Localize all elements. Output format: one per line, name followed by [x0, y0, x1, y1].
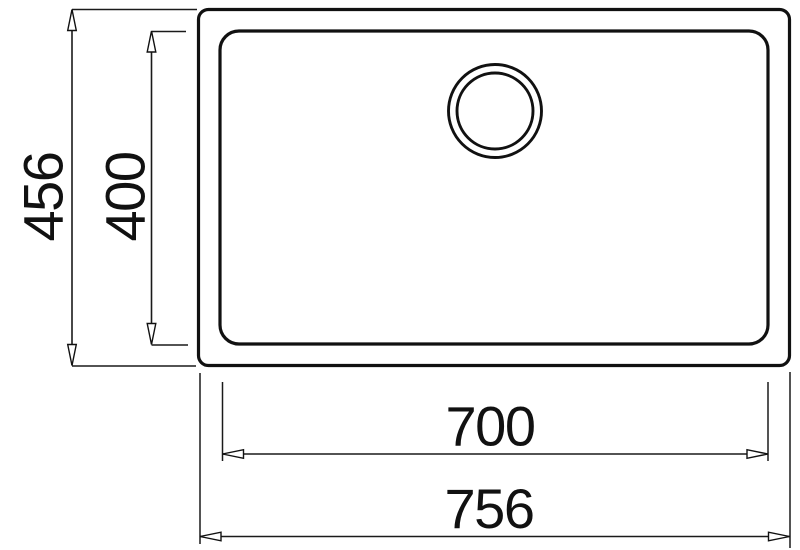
dim-label-inner-height: 400 — [94, 153, 157, 242]
arrowhead-right-icon — [769, 532, 790, 541]
dim-label-outer-height: 456 — [12, 153, 75, 242]
arrowhead-right-icon — [747, 450, 768, 459]
sink-outer-rect — [199, 10, 790, 366]
drain-inner-circle-icon — [457, 73, 533, 149]
dimension-inner-height: 400 — [94, 31, 189, 345]
arrowhead-left-icon — [223, 450, 244, 459]
dim-label-outer-width: 756 — [445, 477, 534, 540]
drawing-canvas: 456 400 700 756 — [0, 0, 800, 550]
sink-outline — [199, 10, 790, 366]
arrowhead-down-icon — [68, 345, 77, 366]
arrowhead-up-icon — [68, 10, 77, 31]
drain-outer-circle-icon — [449, 65, 542, 158]
arrowhead-left-icon — [200, 532, 221, 541]
sink-technical-drawing: 456 400 700 756 — [0, 0, 800, 550]
dimension-inner-width: 700 — [223, 382, 769, 461]
dim-label-inner-width: 700 — [446, 395, 535, 458]
arrowhead-down-icon — [147, 324, 156, 345]
arrowhead-up-icon — [147, 31, 156, 52]
sink-bowl-rect — [220, 31, 768, 344]
drain — [449, 65, 542, 158]
